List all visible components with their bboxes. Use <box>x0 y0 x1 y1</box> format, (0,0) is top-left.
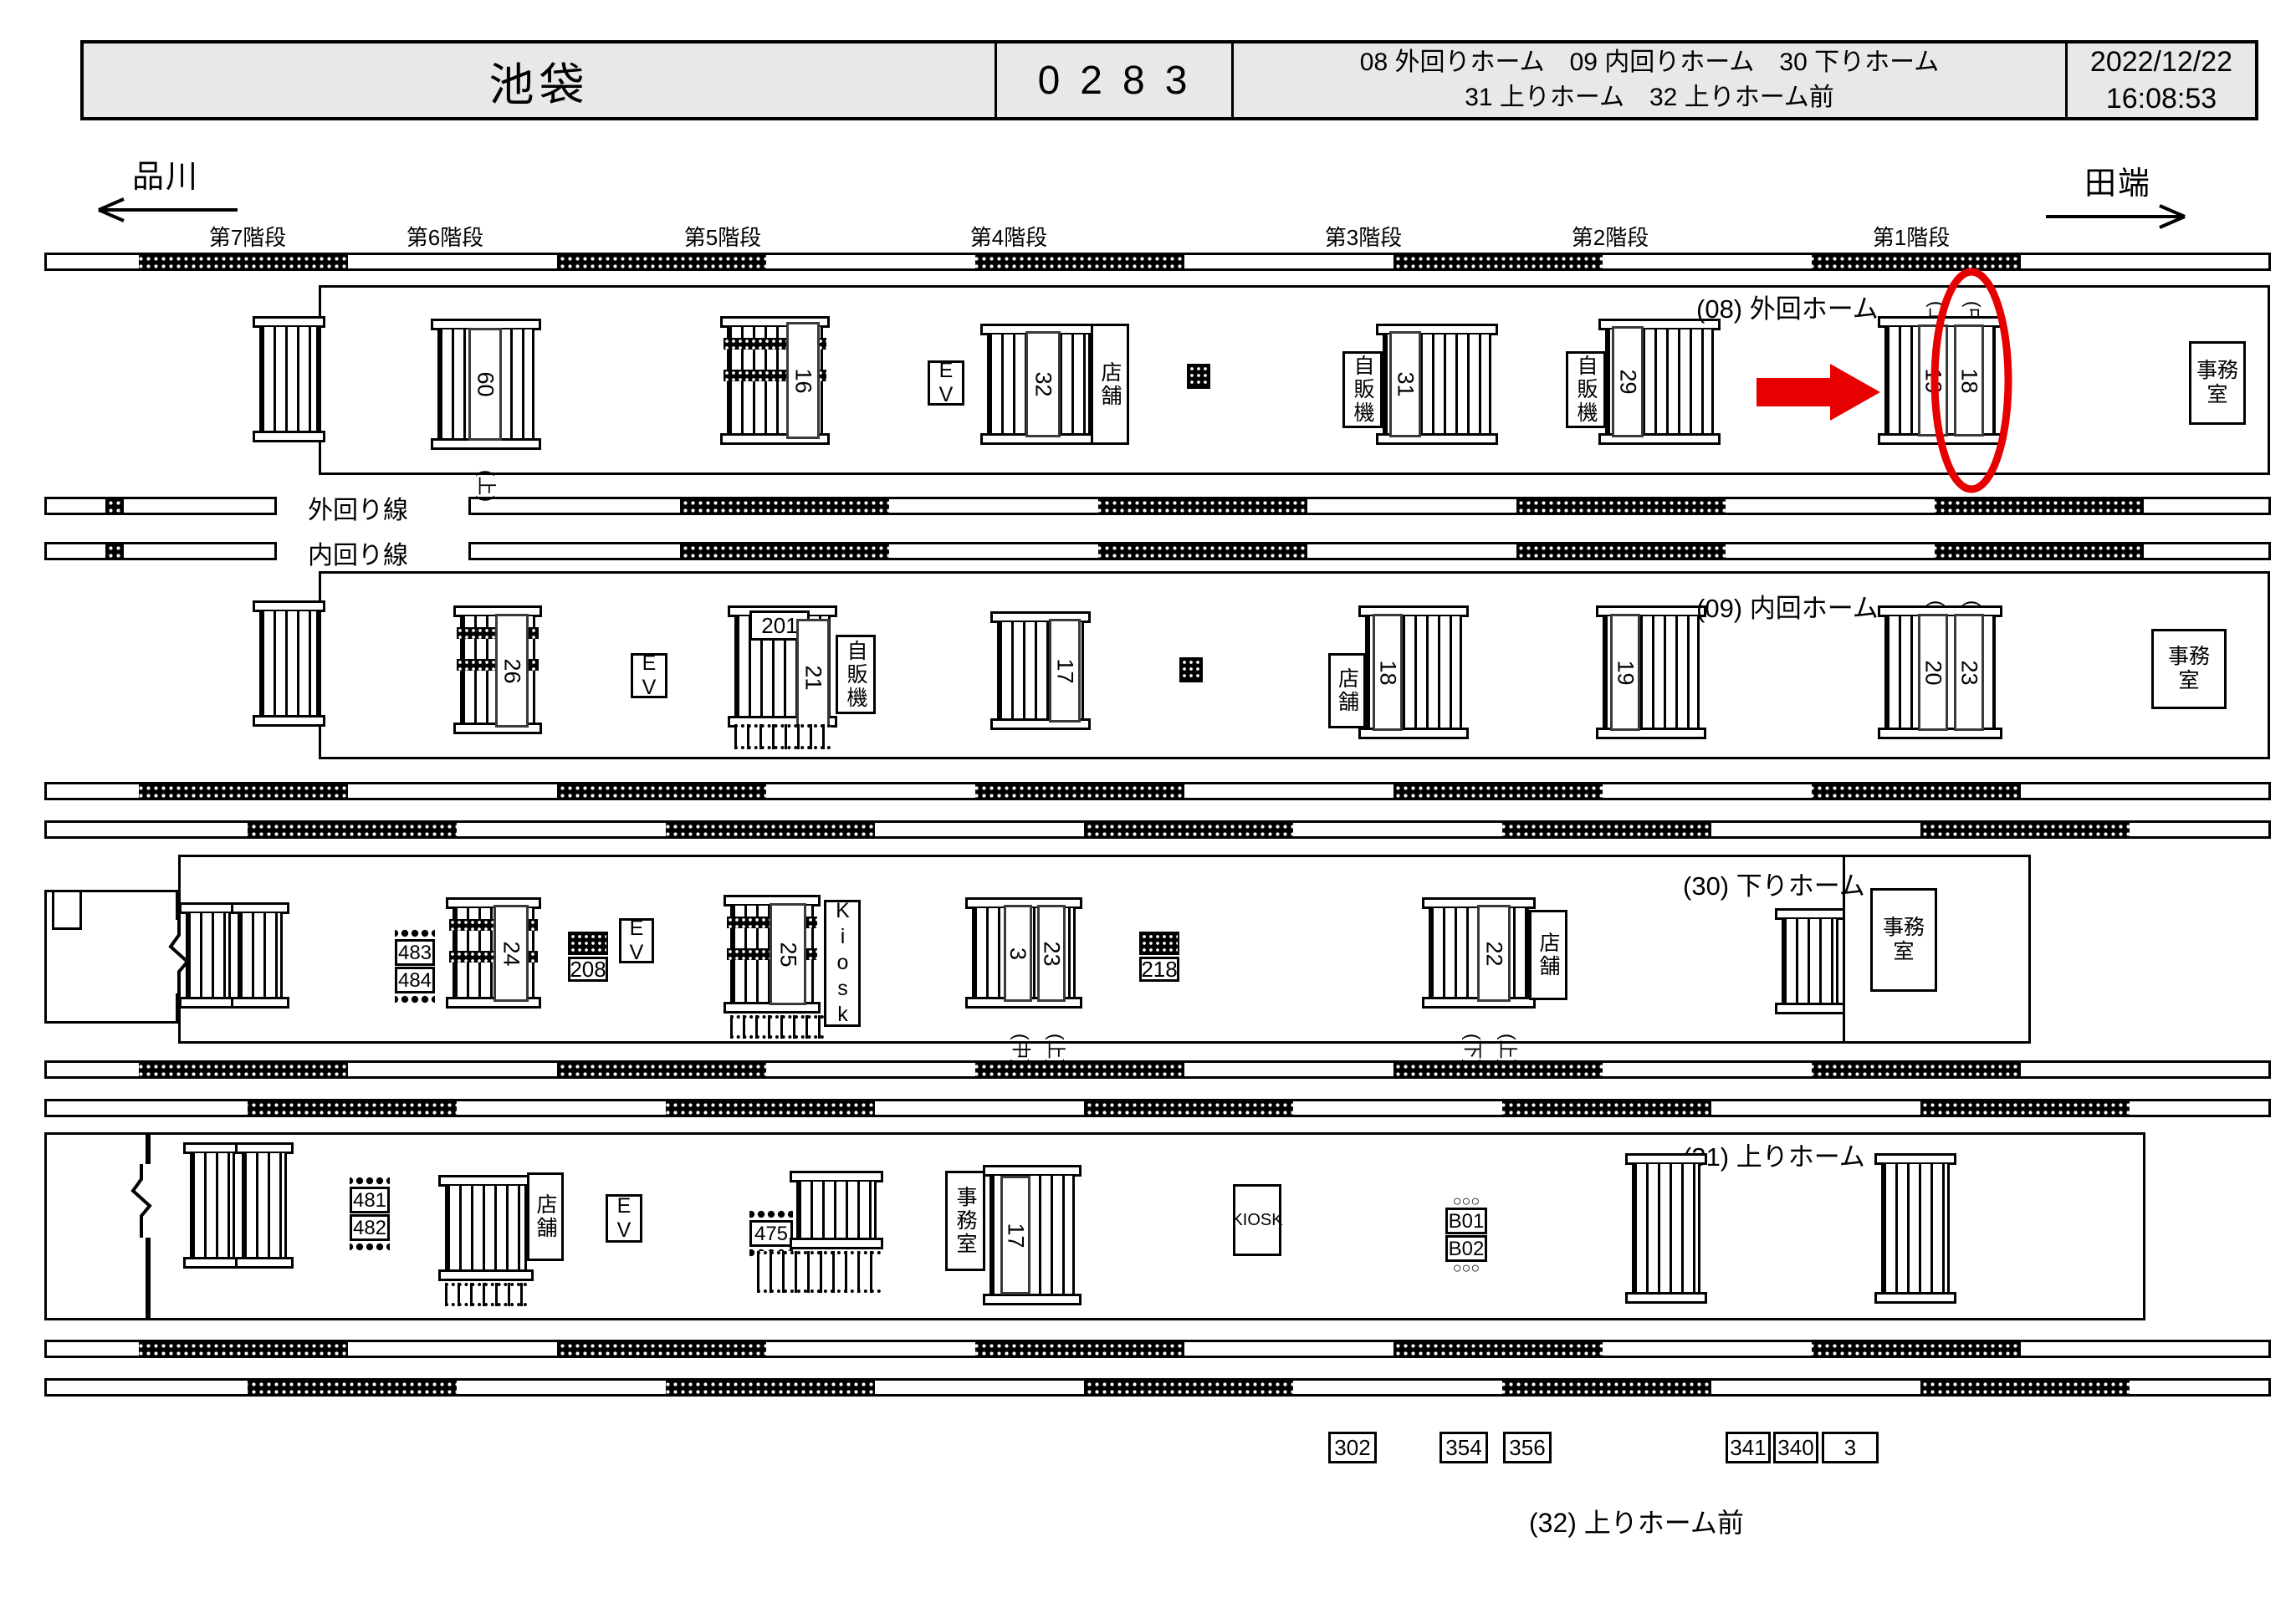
rlabel-(上): (上) <box>1043 1022 1073 1077</box>
escalator-number: 3 <box>1005 947 1031 959</box>
office-box: 事務室 <box>2189 341 2246 425</box>
stair-cap <box>983 1294 1082 1305</box>
badge-stack-481-482: 481482 <box>350 1176 390 1252</box>
badge-302: 302 <box>1328 1432 1377 1463</box>
badge-481: 481 <box>350 1187 390 1213</box>
shop-box: 店舗 <box>1529 910 1567 1000</box>
escalator-number: 19 <box>1920 368 1946 393</box>
escalator-17: 17 <box>1000 1176 1030 1295</box>
track <box>44 1099 2271 1117</box>
stair-steps <box>238 913 283 998</box>
escalator-number: 60 <box>472 371 498 396</box>
office-box: 事務室 <box>2151 629 2227 709</box>
stair-cap <box>983 1165 1082 1177</box>
shop-box: 店舗 <box>1328 653 1366 728</box>
office-box: 事務室 <box>1870 888 1937 992</box>
stair-cap <box>1775 908 1845 920</box>
escalator-number: 22 <box>1480 941 1506 966</box>
escalator-number: 21 <box>800 665 826 690</box>
escalator-31: 31 <box>1389 331 1421 437</box>
stair-icon <box>259 316 319 442</box>
badge-218: 218 <box>1139 957 1179 982</box>
escalator-number: 17 <box>1003 1223 1029 1248</box>
stair-cap <box>253 715 325 727</box>
dot-cap <box>395 928 435 938</box>
stair-icon <box>186 902 231 1009</box>
escalator-number: 29 <box>1614 369 1640 394</box>
badge-356: 356 <box>1503 1432 1552 1463</box>
track-uchimawari-right <box>468 542 2271 560</box>
badge-475: 475 <box>749 1220 793 1247</box>
badge-3: 3 <box>1822 1432 1879 1463</box>
box-text-line: E <box>630 917 644 941</box>
rlabel-(上): (上) <box>1495 1022 1525 1077</box>
platform-30-notch <box>52 890 82 930</box>
uchimawari-line-label: 内回り線 <box>308 534 408 571</box>
stair-steps <box>1632 1164 1700 1293</box>
stair-steps <box>186 913 231 998</box>
stair-cap <box>790 1238 883 1249</box>
box-text-line: 事務 <box>2168 645 2210 669</box>
track <box>44 1340 2271 1358</box>
stair-cap <box>438 1175 534 1187</box>
elevator-box: EV <box>606 1194 642 1243</box>
escalator-23: 23 <box>1954 614 1984 731</box>
stair-cap <box>1625 1153 1707 1165</box>
dot-cap <box>350 1242 390 1252</box>
stair-cap <box>231 902 289 914</box>
track <box>44 820 2271 839</box>
escalator-60: 60 <box>468 328 502 441</box>
vending-machine-box: 自販機 <box>1342 351 1383 428</box>
stair-icon <box>1881 1153 1950 1304</box>
escalator-29: 29 <box>1612 326 1644 437</box>
kiosk-box: KIOSK <box>1233 1184 1281 1256</box>
stair1-name: 第1階段 <box>1873 221 1950 252</box>
badge-B01: B01 <box>1445 1208 1487 1234</box>
box-text-line: 室 <box>2207 383 2227 407</box>
box-text-line: 室 <box>2178 669 2199 693</box>
rotated-annotation: (下) <box>1460 1034 1489 1065</box>
escalator-3: 3 <box>1004 905 1032 1002</box>
track-sotomawari-right <box>468 497 2271 515</box>
kiosk-box: Kiosk <box>824 900 861 1027</box>
escalator-number: 25 <box>775 942 800 967</box>
track-top <box>44 253 2271 271</box>
escalator-number: 18 <box>1375 660 1401 685</box>
track <box>44 1060 2271 1079</box>
station-monitor-screen: 池袋 0283 08 外回りホーム 09 内回りホーム 30 下りホーム 31 … <box>0 0 2296 1624</box>
stair6-name: 第6階段 <box>407 221 483 252</box>
stair-icon <box>1632 1153 1700 1304</box>
stair-cap <box>253 316 325 328</box>
stair3-name: 第3階段 <box>1325 221 1402 252</box>
sotomawari-line-label: 外回り線 <box>308 489 408 526</box>
stair2-name: 第2階段 <box>1572 221 1649 252</box>
track <box>44 1378 2271 1397</box>
escalator-number: 16 <box>790 368 816 393</box>
vending-machine-box: 自販機 <box>1566 351 1606 428</box>
stair-icon <box>445 1175 527 1281</box>
escalator-number: 23 <box>1039 941 1065 966</box>
stair-cap <box>253 600 325 612</box>
platform-09-label: (09) 内回ホーム <box>1696 587 1879 625</box>
rotated-annotation: (上) <box>1044 1034 1072 1065</box>
escalator-19: 19 <box>1918 324 1948 437</box>
rotated-annotation: (上) <box>474 470 503 502</box>
stair4-name: 第4階段 <box>970 221 1047 252</box>
dot-cap <box>350 1176 390 1186</box>
box-text-line: V <box>642 676 657 700</box>
checker <box>1187 364 1210 389</box>
stair-icon <box>242 1142 287 1269</box>
box-text-line: 事務 <box>1883 916 1925 940</box>
escalator-32: 32 <box>1025 331 1061 437</box>
track-uchimawari-left <box>44 542 277 560</box>
track-diagram: 第7階段第6階段第5階段第4階段第3階段第2階段第1階段外回り線内回り線60(上… <box>0 0 2296 1624</box>
rlabel-(上): (上) <box>473 458 504 513</box>
escalator-23: 23 <box>1037 905 1066 1002</box>
stair-cap <box>253 431 325 442</box>
badge-stack-483-484: 483484 <box>395 928 435 1004</box>
badge-208: 208 <box>568 957 608 982</box>
ladder <box>730 1015 824 1039</box>
stair-cap <box>790 1171 883 1182</box>
elevator-box: EV <box>631 653 667 698</box>
stair-icon <box>190 1142 235 1269</box>
stair-cap <box>179 997 238 1009</box>
stair-steps <box>259 611 319 716</box>
stair-steps <box>445 1186 527 1270</box>
stair-icon <box>259 600 319 727</box>
escalator-22: 22 <box>1477 905 1511 1002</box>
stair-cap <box>438 1269 534 1281</box>
escalator-number: 26 <box>499 658 524 683</box>
escalator-20: 20 <box>1918 614 1948 731</box>
track-sotomawari-left <box>44 497 277 515</box>
escalator-number: 31 <box>1392 371 1418 396</box>
stair7-name: 第7階段 <box>209 221 286 252</box>
break-mark-31 <box>130 1164 152 1238</box>
stair-steps <box>259 327 319 432</box>
escalator-17: 17 <box>1049 619 1081 723</box>
badge-482: 482 <box>350 1214 390 1241</box>
badge-B02: B02 <box>1445 1235 1487 1262</box>
ladder <box>757 1251 881 1293</box>
zigzag-break-icon <box>130 1164 152 1238</box>
box-text-line: E <box>642 651 657 676</box>
escalator-18-highlighted: 18 <box>1954 324 1984 437</box>
stair-steps <box>796 1182 877 1238</box>
platform-08-label: (08) 外回ホーム <box>1696 288 1879 325</box>
platform-30-label: (30) 下りホーム <box>1683 865 1865 902</box>
stair-cap <box>179 902 238 914</box>
office-box: 事務室 <box>945 1171 985 1271</box>
dot-cap <box>395 994 435 1004</box>
circle-cap: ○○○ <box>1445 1263 1487 1274</box>
escalator-16: 16 <box>786 322 820 439</box>
elevator-box: EV <box>928 360 964 406</box>
box-text-line: 室 <box>1893 940 1914 964</box>
badge-484: 484 <box>395 967 435 993</box>
stair-cap <box>183 1257 242 1269</box>
stair-steps <box>190 1153 235 1258</box>
rotated-annotation: (上) <box>1496 1034 1524 1065</box>
box-text-line: E <box>617 1194 632 1218</box>
stair-cap <box>1874 1292 1956 1304</box>
escalator-24: 24 <box>493 905 529 1002</box>
stair-steps <box>242 1153 287 1258</box>
rlabel-(中): (中) <box>1008 1022 1038 1077</box>
stair-cap <box>235 1257 294 1269</box>
stair5-name: 第5階段 <box>684 221 761 252</box>
box-text-line: V <box>630 941 644 965</box>
escalator-number: 18 <box>1956 368 1982 393</box>
stair-cap <box>1874 1153 1956 1165</box>
rotated-annotation: (中) <box>1009 1034 1037 1065</box>
stair-cap <box>235 1142 294 1154</box>
stair-cap <box>1625 1292 1707 1304</box>
box-text-line: V <box>617 1218 632 1243</box>
badge-341: 341 <box>1726 1432 1771 1463</box>
stair-steps <box>1881 1164 1950 1293</box>
stair-icon <box>1782 908 1838 1014</box>
rlabel-(下): (下) <box>1460 1022 1490 1077</box>
escalator-number: 17 <box>1051 658 1077 683</box>
box-text-line: KIOSK <box>1231 1211 1282 1230</box>
badge-stack-b01-b02: ○○○B01B02○○○ <box>1445 1196 1487 1274</box>
checker <box>568 932 608 955</box>
badge-340: 340 <box>1773 1432 1818 1463</box>
escalator-19: 19 <box>1610 614 1640 731</box>
box-text-line: E <box>939 359 954 383</box>
escalator-21: 21 <box>796 619 830 736</box>
shop-box: 店舗 <box>1091 324 1129 445</box>
escalator-number: 23 <box>1956 660 1982 685</box>
ladder <box>445 1283 527 1306</box>
stair-icon <box>796 1171 877 1249</box>
stair-cap <box>183 1142 242 1154</box>
stair-steps <box>1782 919 1838 1004</box>
escalator-number: 32 <box>1030 371 1056 396</box>
track <box>44 782 2271 800</box>
box-text-line: 事務 <box>2196 359 2238 383</box>
shop-box: 店舗 <box>527 1172 564 1261</box>
badge-483: 483 <box>395 939 435 966</box>
escalator-number: 20 <box>1920 660 1946 685</box>
stair-cap <box>231 997 289 1009</box>
platform-31-label: (31) 上りホーム <box>1683 1136 1865 1173</box>
badge-354: 354 <box>1439 1432 1488 1463</box>
stair-icon <box>238 902 283 1009</box>
stair-cap <box>1775 1003 1845 1014</box>
circle-cap: ○○○ <box>1445 1196 1487 1207</box>
escalator-number: 19 <box>1613 660 1639 685</box>
escalator-18: 18 <box>1373 614 1403 731</box>
platform-32-label: (32) 上りホーム前 <box>1529 1502 1744 1540</box>
vending-machine-box: 自販機 <box>836 635 876 714</box>
checker <box>1139 932 1179 955</box>
dot-cap <box>749 1209 793 1219</box>
escalator-26: 26 <box>495 614 529 728</box>
box-text-line: V <box>939 383 954 407</box>
escalator-25: 25 <box>770 903 806 1005</box>
checker <box>1179 657 1203 682</box>
ladder <box>734 724 831 749</box>
elevator-box: EV <box>619 918 654 963</box>
escalator-number: 24 <box>498 941 524 966</box>
